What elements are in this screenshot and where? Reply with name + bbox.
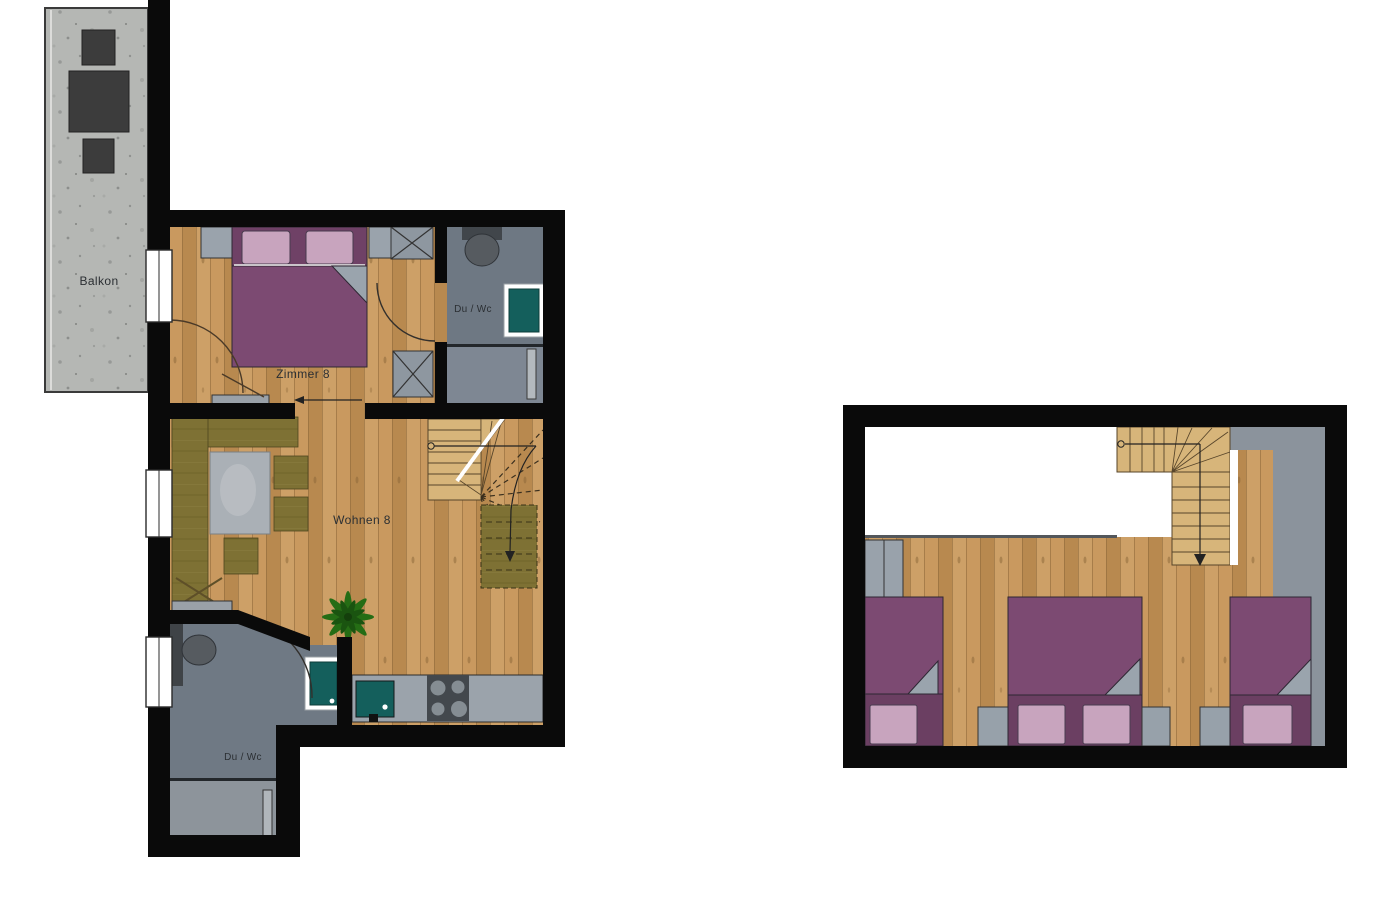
balcony-label: Balkon <box>79 274 118 288</box>
wall-interior-h <box>365 403 543 419</box>
nightstand <box>201 227 232 258</box>
toilet-icon <box>465 234 499 266</box>
balcony-floor <box>45 8 148 392</box>
void-railing-line <box>865 535 1117 538</box>
wood-walkway <box>1238 450 1273 600</box>
nightstand <box>1200 707 1230 746</box>
floor-plan-canvas: Balkon Du / Wc <box>0 0 1387 900</box>
wall-top <box>843 405 1347 427</box>
pillow <box>1243 705 1292 744</box>
wall-interior-v <box>435 227 447 283</box>
balcony-table <box>69 71 129 132</box>
windows <box>146 250 172 707</box>
balcony-chair <box>82 30 115 65</box>
wall-bottom-lower <box>148 835 300 857</box>
open-void <box>865 427 1117 537</box>
bathroom-top-label: Du / Wc <box>454 304 492 315</box>
radiator <box>527 349 536 399</box>
sink-faucet <box>369 714 378 722</box>
bed-double <box>1008 597 1142 746</box>
wall-left <box>148 0 170 857</box>
hall-divider <box>170 778 276 781</box>
bedroom-label: Zimmer 8 <box>276 367 330 381</box>
toilet-icon <box>182 635 216 665</box>
burner-icon <box>432 703 445 716</box>
pillow <box>242 231 290 264</box>
window <box>146 470 172 537</box>
pillow <box>1083 705 1130 744</box>
wardrobe <box>865 540 903 597</box>
armchair <box>274 497 308 531</box>
pillow <box>870 705 917 744</box>
window <box>146 637 172 707</box>
table-highlight <box>220 464 256 516</box>
upper-floor-plan <box>843 405 1347 768</box>
understair-closet <box>481 505 537 588</box>
bathroom-top-divider <box>447 344 543 347</box>
burner-icon <box>452 681 465 694</box>
wall-bath-right <box>337 637 352 725</box>
kitchen-sink <box>356 681 394 717</box>
wall-right <box>1325 405 1347 768</box>
pillow <box>306 231 353 264</box>
wall-bottom <box>843 746 1347 768</box>
bed-single <box>865 597 943 746</box>
wall-right <box>543 210 565 747</box>
window <box>146 250 172 322</box>
sleeping-area <box>865 597 1311 746</box>
sideboard <box>172 601 232 611</box>
sofa-left <box>172 417 208 610</box>
nightstand <box>978 707 1008 746</box>
shower-drain <box>330 699 335 704</box>
nightstand <box>369 227 391 258</box>
shower-tray <box>310 662 337 705</box>
nightstand <box>1142 707 1170 746</box>
balcony-chair <box>83 139 114 173</box>
wall-left <box>843 405 865 768</box>
sink-drain <box>382 704 387 709</box>
bed-single <box>1230 597 1311 746</box>
wall-bath-stub <box>170 610 238 624</box>
burner-icon <box>451 701 467 717</box>
wall-top <box>148 210 565 227</box>
balcony: Balkon <box>45 8 148 392</box>
ground-floor-plan: Balkon Du / Wc <box>45 0 565 857</box>
plant-icon <box>322 591 374 643</box>
pillow <box>1018 705 1065 744</box>
shower-tray <box>509 289 539 332</box>
living-label: Wohnen 8 <box>333 513 391 527</box>
bathroom-bottom-label: Du / Wc <box>224 752 262 763</box>
stair-edge-strip <box>1230 450 1238 565</box>
ottoman <box>224 538 258 574</box>
armchair <box>274 456 308 489</box>
wall-interior-h <box>170 403 295 419</box>
wall-interior-v <box>435 342 447 403</box>
burner-icon <box>431 681 446 696</box>
kitchen <box>352 675 543 722</box>
stair-flight <box>1117 427 1230 472</box>
low-headroom-area <box>1311 600 1325 746</box>
stair-flight <box>1172 472 1230 565</box>
low-headroom-area <box>1230 427 1325 450</box>
wall-bottom-living <box>276 725 565 747</box>
hall-floor <box>170 780 276 835</box>
low-headroom-area <box>1273 450 1325 600</box>
